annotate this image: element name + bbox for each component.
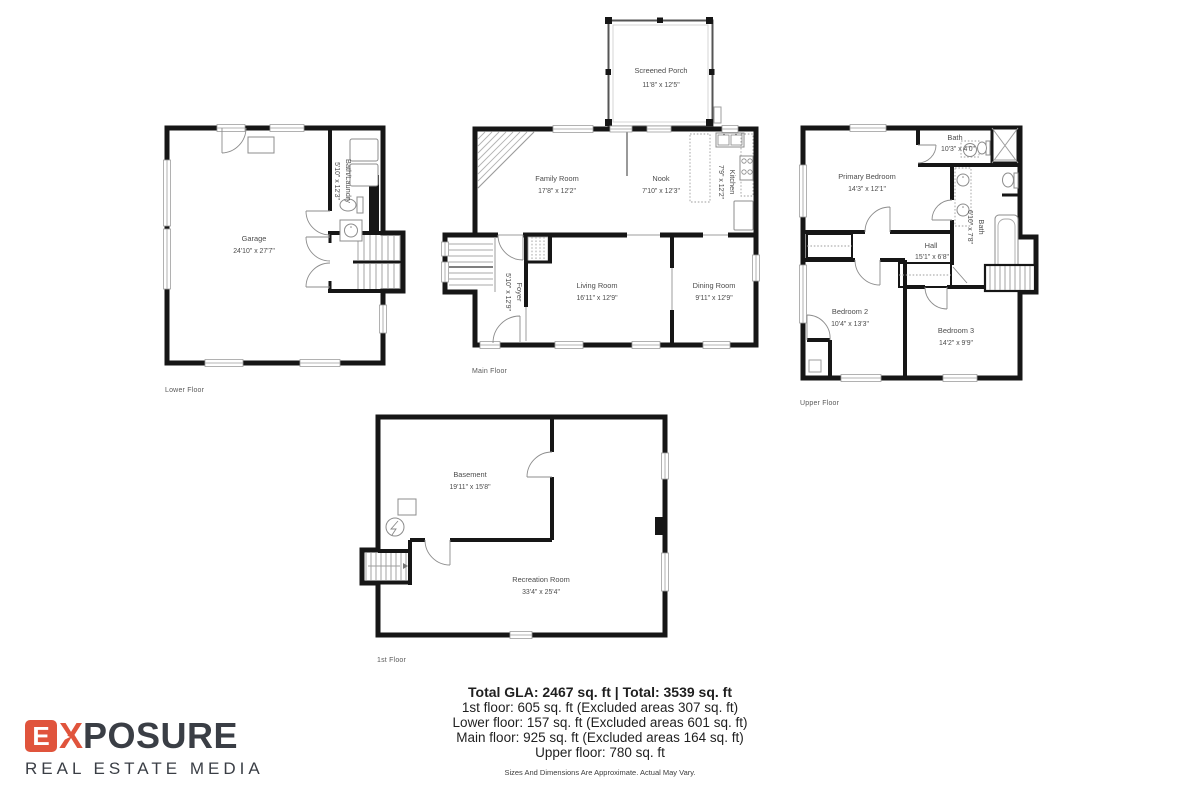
svg-text:16'11" x 12'9": 16'11" x 12'9" <box>576 295 618 302</box>
room-bath2: Bath 6'10" x 7'8" <box>966 210 986 245</box>
svg-text:Hall: Hall <box>925 241 938 250</box>
svg-text:Bath/Laundry: Bath/Laundry <box>344 159 353 203</box>
washer-dryer-icon <box>350 139 378 186</box>
main-floor-plan: Screened Porch 11'8" x 12'5" Family Room… <box>440 10 770 380</box>
logo-x-mark: X <box>59 718 83 754</box>
svg-text:Dining Room: Dining Room <box>693 281 736 290</box>
logo-rest-letters: POSURE <box>83 718 238 754</box>
svg-text:Family Room: Family Room <box>535 174 579 183</box>
windows <box>510 453 669 639</box>
first-floor-caption: 1st Floor <box>377 657 406 664</box>
closet <box>526 235 552 263</box>
svg-text:9'11" x 12'9": 9'11" x 12'9" <box>695 295 733 302</box>
summary-line-1st-floor: 1st floor: 605 sq. ft (Excluded areas 30… <box>0 700 1200 715</box>
svg-text:Bedroom 2: Bedroom 2 <box>832 307 868 316</box>
room-bath1: Bath 10'3" x 4'0" <box>941 133 976 153</box>
svg-text:24'10" x 27'7": 24'10" x 27'7" <box>233 248 275 255</box>
total-gla-title: Total GLA: 2467 sq. ft | Total: 3539 sq.… <box>0 685 1200 700</box>
room-bedroom3: Bedroom 3 14'2" x 9'9" <box>938 326 974 347</box>
svg-text:Bedroom 3: Bedroom 3 <box>938 326 974 335</box>
svg-text:Garage: Garage <box>242 234 267 243</box>
svg-text:7'10" x 12'3": 7'10" x 12'3" <box>642 188 680 195</box>
room-primary-bedroom: Primary Bedroom 14'3" x 12'1" <box>838 172 896 193</box>
first-floor-plan: Basement 19'11" x 15'8" Recreation Room … <box>350 405 690 675</box>
logo-wordmark: E X POSURE <box>25 716 264 756</box>
svg-text:Nook: Nook <box>652 174 670 183</box>
lower-floor-caption: Lower Floor <box>165 387 204 394</box>
sink-icon <box>340 220 362 241</box>
upper-floor-caption: Upper Floor <box>800 400 839 407</box>
svg-text:5'10" x 12'3": 5'10" x 12'3" <box>333 162 340 200</box>
stairs-upper <box>985 265 1035 291</box>
room-foyer: Foyer 5'10" x 12'9" <box>504 273 524 311</box>
doors <box>222 128 330 287</box>
lower-floor-plan: Garage 24'10" x 27'7" Bath/Laundry 5'10"… <box>160 115 420 405</box>
svg-text:Basement: Basement <box>453 470 486 479</box>
svg-text:Kitchen: Kitchen <box>728 170 737 195</box>
walls <box>445 129 756 345</box>
stairs-to-upper-hatch <box>478 132 534 188</box>
svg-text:5'10" x 12'9": 5'10" x 12'9" <box>504 273 511 311</box>
svg-text:Living Room: Living Room <box>576 281 617 290</box>
upper-floor-plan: Primary Bedroom 14'3" x 12'1" Bath 10'3"… <box>795 115 1045 415</box>
shower-icon <box>992 128 1018 163</box>
room-garage: Garage 24'10" x 27'7" <box>233 234 275 255</box>
svg-text:Screened Porch: Screened Porch <box>635 66 688 75</box>
svg-text:14'2" x 9'9": 14'2" x 9'9" <box>939 340 974 347</box>
svg-text:6'10" x 7'8": 6'10" x 7'8" <box>966 210 973 245</box>
svg-text:15'1" x 6'8": 15'1" x 6'8" <box>915 254 950 261</box>
svg-text:17'8" x 12'2": 17'8" x 12'2" <box>538 188 576 195</box>
logo-e-mark: E <box>25 720 57 752</box>
room-nook: Nook 7'10" x 12'3" <box>642 174 680 195</box>
svg-text:Bath: Bath <box>977 219 986 234</box>
svg-text:Foyer: Foyer <box>515 283 524 302</box>
svg-text:10'4" x 13'3": 10'4" x 13'3" <box>831 321 869 328</box>
room-recreation: Recreation Room 33'4" x 25'4" <box>512 575 570 596</box>
svg-text:Recreation Room: Recreation Room <box>512 575 570 584</box>
svg-text:11'8" x 12'5": 11'8" x 12'5" <box>642 82 680 89</box>
walls <box>167 128 403 363</box>
svg-text:10'3" x 4'0": 10'3" x 4'0" <box>941 146 976 153</box>
garage-equipment-icon <box>248 137 274 153</box>
room-living-room: Living Room 16'11" x 12'9" <box>576 281 618 302</box>
room-family-room: Family Room 17'8" x 12'2" <box>535 174 579 195</box>
room-dining-room: Dining Room 9'11" x 12'9" <box>693 281 736 302</box>
stairs-main <box>449 237 495 292</box>
room-bath-laundry: Bath/Laundry 5'10" x 12'3" <box>333 159 353 203</box>
room-hall: Hall 15'1" x 6'8" <box>915 241 950 261</box>
svg-text:Primary Bedroom: Primary Bedroom <box>838 172 896 181</box>
doors <box>425 452 552 565</box>
furnace-icon <box>386 499 416 536</box>
room-bedroom2: Bedroom 2 10'4" x 13'3" <box>831 307 869 328</box>
walls <box>362 417 665 635</box>
stairs-first <box>366 553 408 580</box>
room-basement: Basement 19'11" x 15'8" <box>449 470 491 491</box>
svg-text:Bath: Bath <box>947 133 962 142</box>
svg-text:7'9" x 12'2": 7'9" x 12'2" <box>717 165 724 200</box>
exposure-logo: E X POSURE REAL ESTATE MEDIA <box>25 716 264 779</box>
logo-arrow-icon <box>62 733 70 741</box>
svg-text:14'3" x 12'1": 14'3" x 12'1" <box>848 186 886 193</box>
svg-text:33'4" x 25'4": 33'4" x 25'4" <box>522 589 560 596</box>
logo-tagline: REAL ESTATE MEDIA <box>25 759 264 779</box>
main-floor-caption: Main Floor <box>472 368 507 375</box>
svg-text:19'11" x 15'8": 19'11" x 15'8" <box>449 484 491 491</box>
room-kitchen: Kitchen 7'9" x 12'2" <box>717 165 737 200</box>
